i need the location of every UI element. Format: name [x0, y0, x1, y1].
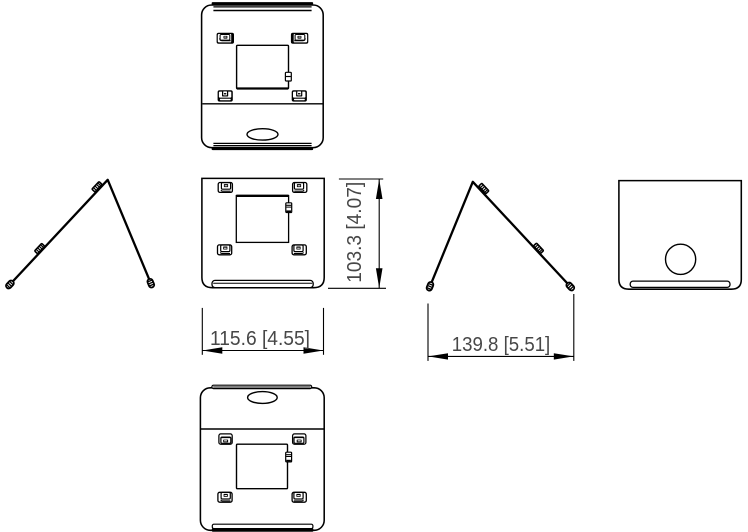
svg-text:103.3 [4.07]: 103.3 [4.07] — [344, 182, 366, 283]
svg-text:139.8 [5.51]: 139.8 [5.51] — [452, 334, 551, 356]
svg-text:115.6 [4.55]: 115.6 [4.55] — [210, 328, 310, 350]
